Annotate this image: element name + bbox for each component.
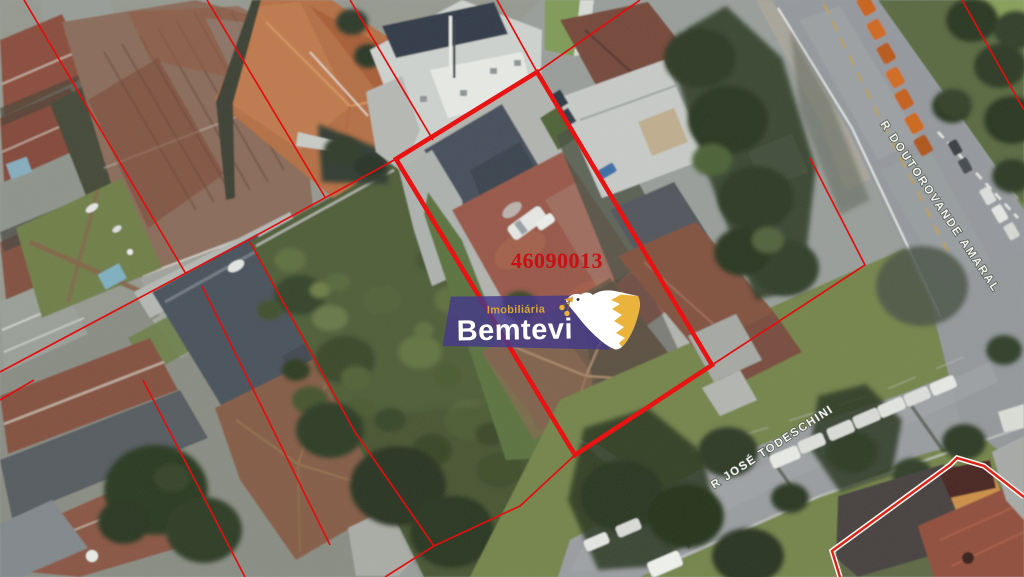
svg-text:Bemtevi: Bemtevi	[456, 313, 573, 347]
svg-text:46090013: 46090013	[511, 248, 603, 273]
